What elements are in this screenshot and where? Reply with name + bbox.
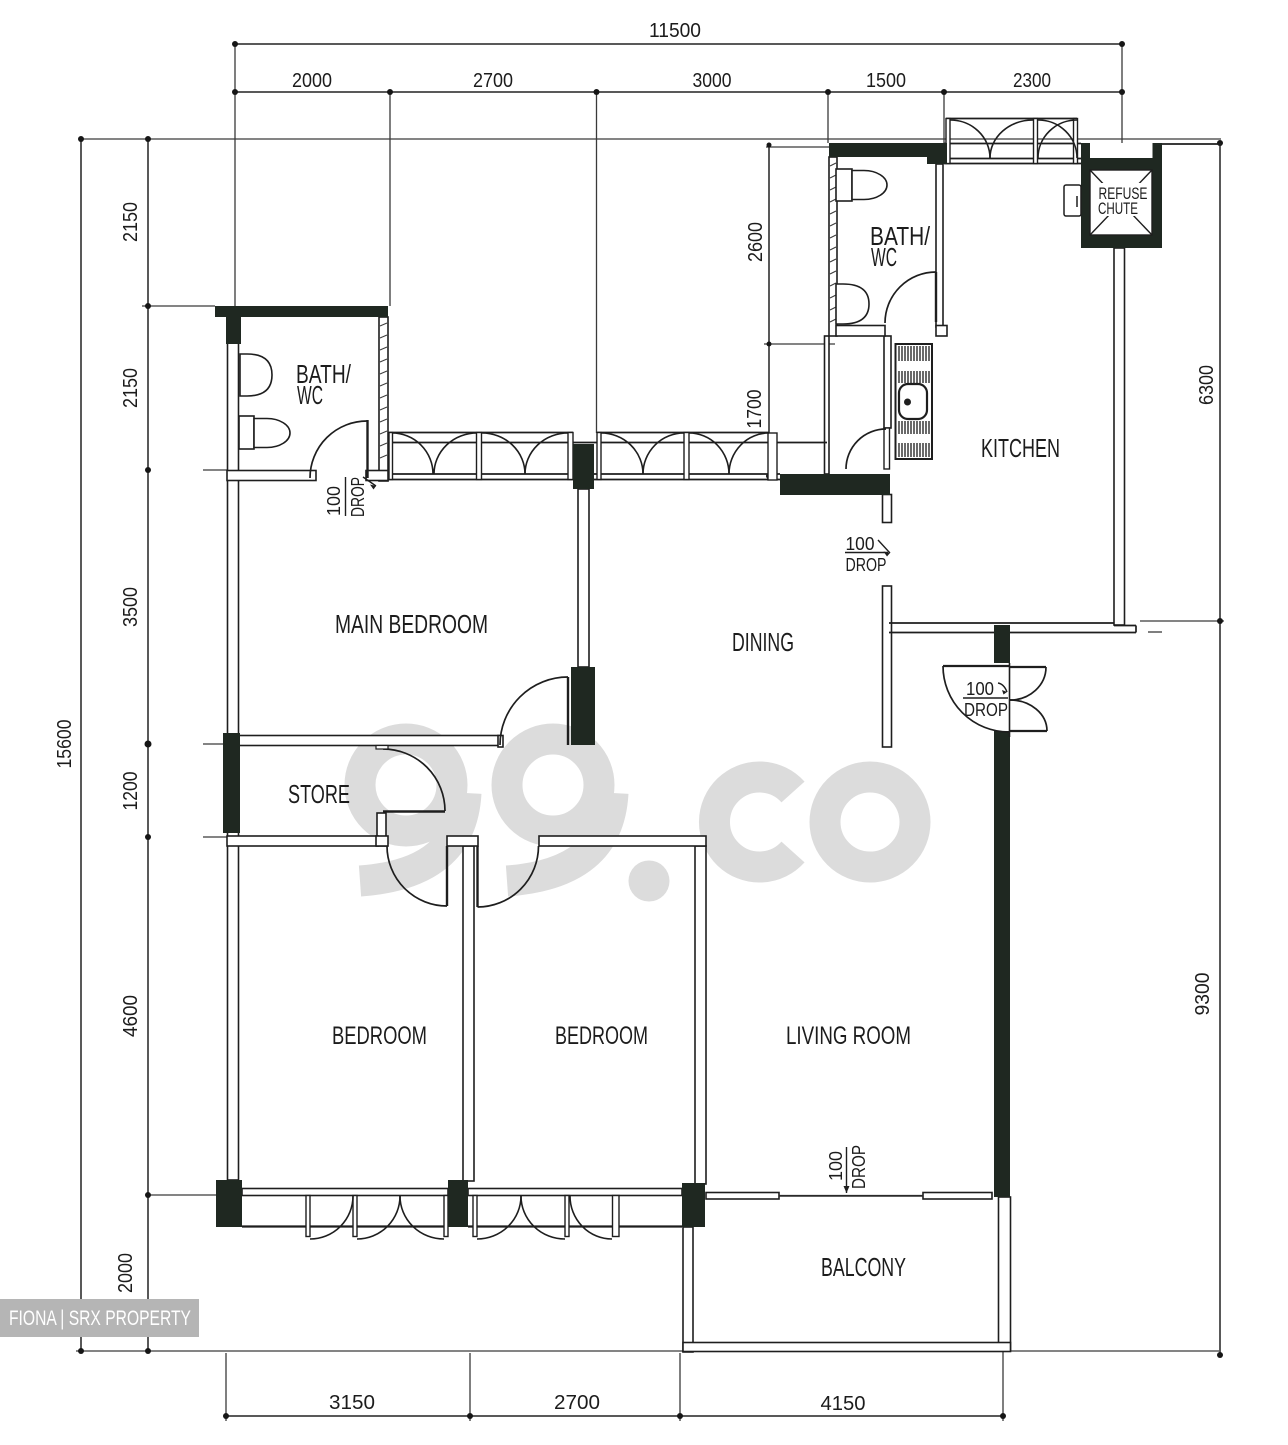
svg-text:11500: 11500 <box>649 20 701 42</box>
svg-text:2600: 2600 <box>745 222 767 262</box>
svg-text:3150: 3150 <box>329 1392 375 1414</box>
svg-text:BEDROOM: BEDROOM <box>555 1022 648 1050</box>
svg-text:BALCONY: BALCONY <box>821 1252 906 1282</box>
svg-text:100: 100 <box>846 534 875 554</box>
svg-text:MAIN BEDROOM: MAIN BEDROOM <box>335 609 488 639</box>
svg-text:100: 100 <box>826 1151 846 1181</box>
svg-text:KITCHEN: KITCHEN <box>981 433 1060 463</box>
svg-text:4150: 4150 <box>821 1393 866 1415</box>
svg-text:BEDROOM: BEDROOM <box>332 1022 427 1050</box>
svg-text:DROP: DROP <box>849 1145 869 1189</box>
svg-text:FIONA | SRX PROPERTY: FIONA | SRX PROPERTY <box>9 1307 191 1330</box>
svg-text:3000: 3000 <box>693 70 732 92</box>
svg-text:9300: 9300 <box>1192 973 1214 1016</box>
svg-text:2000: 2000 <box>115 1253 137 1293</box>
svg-text:1200: 1200 <box>120 772 142 811</box>
svg-text:100: 100 <box>324 486 344 516</box>
svg-text:DROP: DROP <box>846 555 887 575</box>
svg-text:STORE: STORE <box>288 779 350 809</box>
svg-text:WC: WC <box>871 242 897 272</box>
svg-text:15600: 15600 <box>54 720 76 769</box>
svg-text:1700: 1700 <box>744 390 766 429</box>
svg-text:2700: 2700 <box>473 70 513 92</box>
svg-text:DINING: DINING <box>732 627 794 657</box>
svg-text:6300: 6300 <box>1196 365 1218 405</box>
svg-text:2300: 2300 <box>1013 70 1051 92</box>
svg-text:3500: 3500 <box>120 587 142 627</box>
svg-text:100: 100 <box>966 679 994 699</box>
svg-text:2150: 2150 <box>120 202 142 242</box>
svg-text:WC: WC <box>297 380 323 410</box>
svg-text:4600: 4600 <box>120 995 142 1037</box>
svg-text:DROP: DROP <box>964 700 1008 720</box>
svg-text:1500: 1500 <box>866 70 906 92</box>
svg-text:2700: 2700 <box>554 1392 600 1414</box>
svg-text:DROP: DROP <box>348 477 368 517</box>
svg-text:2150: 2150 <box>120 368 142 408</box>
svg-text:CHUTE: CHUTE <box>1098 200 1138 218</box>
svg-text:LIVING ROOM: LIVING ROOM <box>786 1022 911 1050</box>
svg-text:2000: 2000 <box>292 70 332 92</box>
